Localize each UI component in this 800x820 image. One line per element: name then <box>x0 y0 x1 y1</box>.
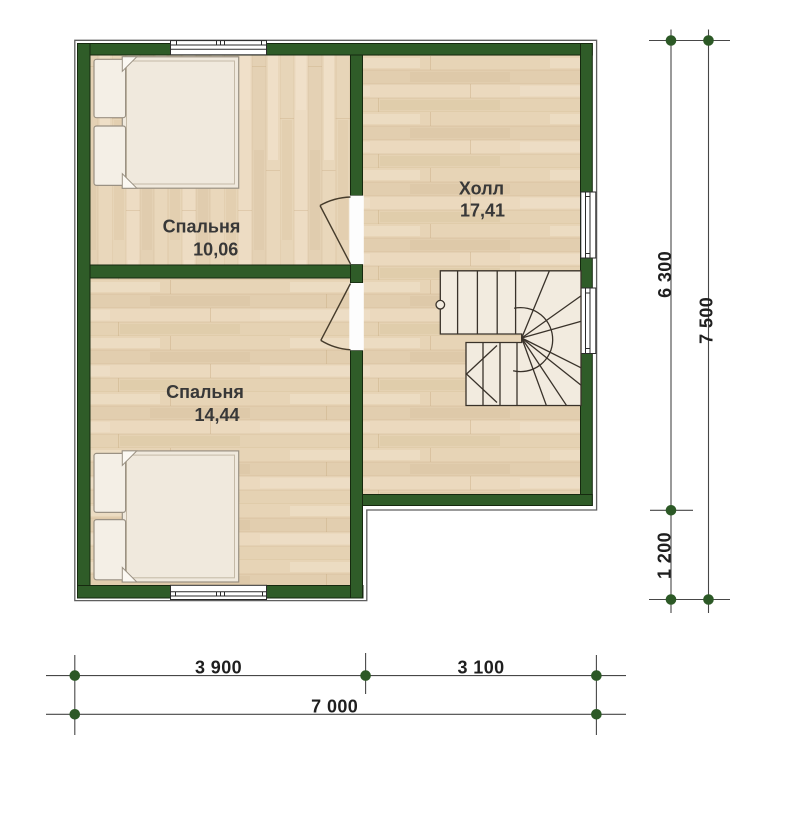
svg-text:14,44: 14,44 <box>194 405 239 425</box>
svg-text:Спальня: Спальня <box>163 217 241 237</box>
svg-text:Холл: Холл <box>459 179 504 199</box>
svg-text:3 900: 3 900 <box>195 658 242 678</box>
svg-text:17,41: 17,41 <box>460 201 505 221</box>
svg-text:1 200: 1 200 <box>654 532 674 579</box>
svg-text:7 500: 7 500 <box>696 297 716 344</box>
svg-text:10,06: 10,06 <box>193 240 238 260</box>
svg-text:Спальня: Спальня <box>166 382 244 402</box>
svg-text:3 100: 3 100 <box>457 658 504 678</box>
svg-text:7 000: 7 000 <box>311 696 358 716</box>
svg-text:6 300: 6 300 <box>655 251 675 298</box>
